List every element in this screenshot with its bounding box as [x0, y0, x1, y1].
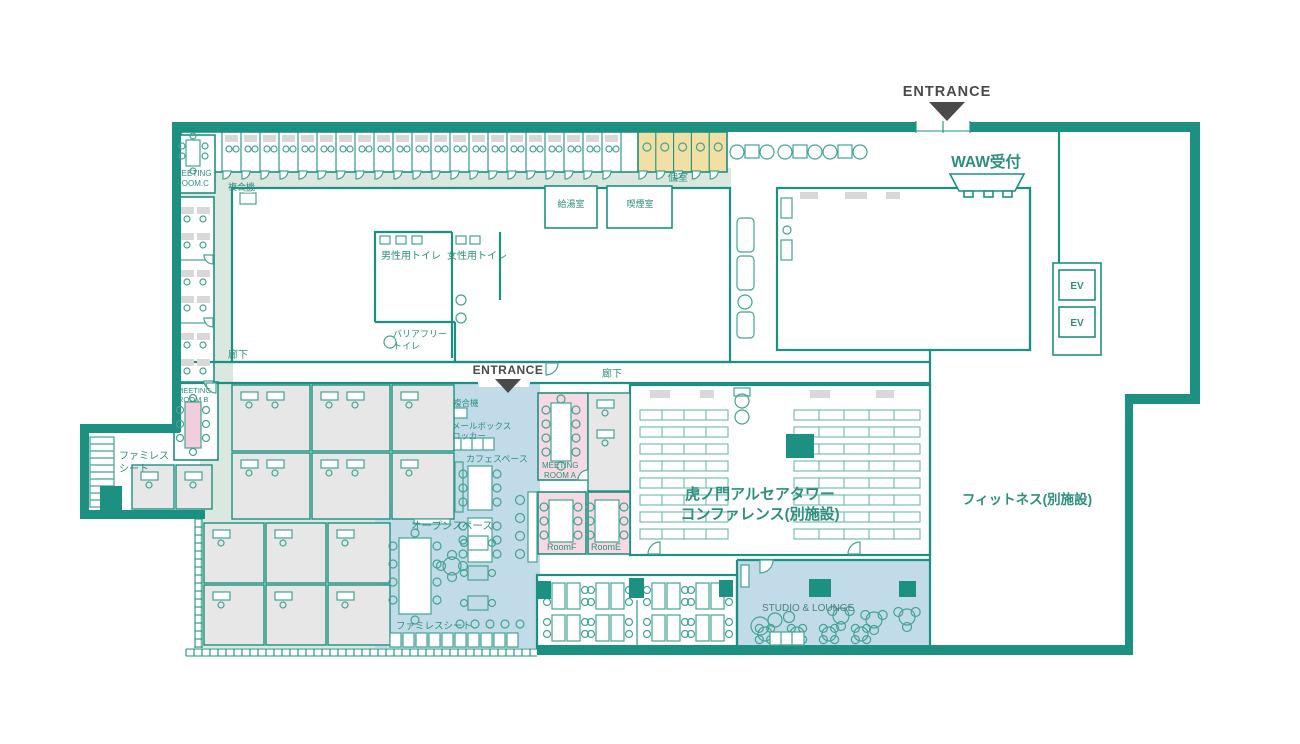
svg-text:ロッカー: ロッカー	[452, 431, 486, 441]
svg-text:ROOM A: ROOM A	[544, 471, 577, 480]
svg-text:ROOM.C: ROOM.C	[176, 179, 209, 188]
studio-lounge-label: STUDIO & LOUNGE	[762, 603, 855, 614]
meeting-room-c-label: MEETING	[175, 169, 211, 178]
mailbox-locker-label: メールボックス	[452, 421, 511, 431]
kitchenette-label: 給湯室	[557, 198, 584, 209]
entrance-top-label: ENTRANCE	[903, 84, 992, 100]
svg-text:トイレ: トイレ	[393, 341, 420, 351]
reception-desk-leg	[1003, 191, 1012, 197]
room-e-label: RoomE	[591, 542, 621, 552]
meeting-room-b-label: MEETING	[177, 386, 211, 395]
corridor-left-label: 廊下	[228, 348, 248, 361]
svg-text:シート: シート	[119, 464, 149, 475]
open-space-label: オープンスペース	[411, 520, 493, 532]
copier-mid-label: 複合機	[453, 398, 479, 408]
cafe-space-label: カフェスペース	[466, 454, 528, 464]
entrance-top-arrow-icon	[929, 102, 965, 121]
mens-toilet-label: 男性用トイレ	[381, 249, 441, 262]
floor-plan-svg: ENTRANCE ENTRANCE WAW受付 MEETING ROOM.C 複…	[0, 0, 1300, 744]
floor-plan-page: ENTRANCE ENTRANCE WAW受付 MEETING ROOM.C 複…	[0, 0, 1300, 744]
family-seat-left-label: ファミレス	[119, 451, 169, 462]
reception-desk-leg	[984, 191, 993, 197]
copier-top-label: 複合機	[228, 181, 255, 192]
meeting-room-a-label: MEETING	[542, 461, 578, 470]
private-rooms-label: 個室	[668, 171, 688, 184]
waw-reception-label: WAW受付	[951, 152, 1021, 171]
room-f-label: RoomF	[547, 542, 577, 552]
reception-desk-leg	[964, 191, 973, 197]
smoking-room-label: 喫煙室	[626, 198, 653, 209]
elevator-2-label: EV	[1070, 318, 1084, 329]
svg-text:コンファレンス(別施設): コンファレンス(別施設)	[680, 505, 839, 523]
womens-toilet-label: 女性用トイレ	[447, 249, 507, 262]
fitness-label: フィットネス(別施設)	[962, 491, 1092, 507]
reception-desk-icon	[950, 174, 1024, 191]
conference-label: 虎ノ門アルセアタワー	[685, 485, 835, 503]
entrance-mid-label: ENTRANCE	[473, 363, 544, 377]
left-booth-column	[176, 197, 214, 385]
family-seat-bottom-label: ファミレスシート	[396, 621, 472, 632]
svg-text:ROOM B: ROOM B	[178, 395, 208, 404]
private-booths-room	[638, 132, 727, 172]
elevator-1-label: EV	[1070, 281, 1084, 292]
office-room-right	[777, 188, 1030, 350]
corridor-mid-label: 廊下	[602, 367, 622, 380]
barrier-free-toilet-label: バリアフリー	[393, 329, 447, 339]
